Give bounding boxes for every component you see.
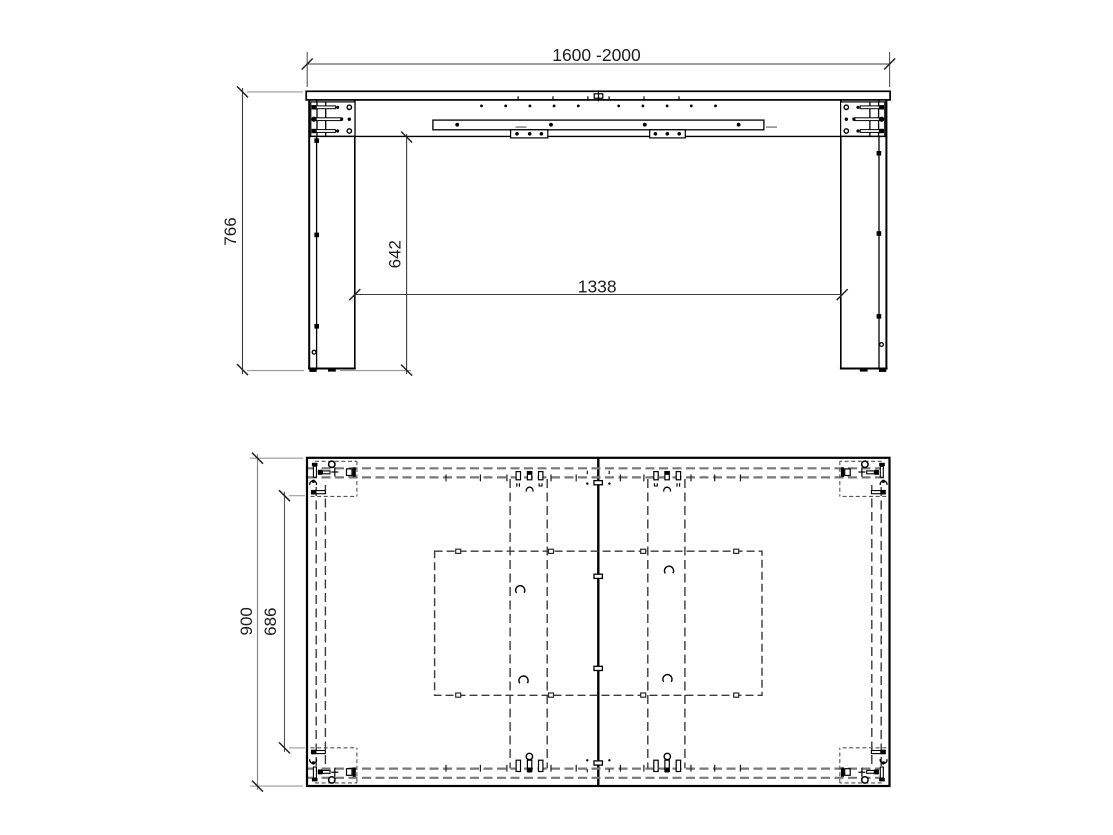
- svg-text:900: 900: [237, 607, 256, 635]
- svg-text:766: 766: [221, 217, 240, 245]
- svg-text:642: 642: [386, 240, 405, 268]
- svg-text:1600 -2000: 1600 -2000: [552, 45, 641, 65]
- svg-text:1338: 1338: [578, 276, 617, 296]
- svg-text:686: 686: [261, 608, 280, 636]
